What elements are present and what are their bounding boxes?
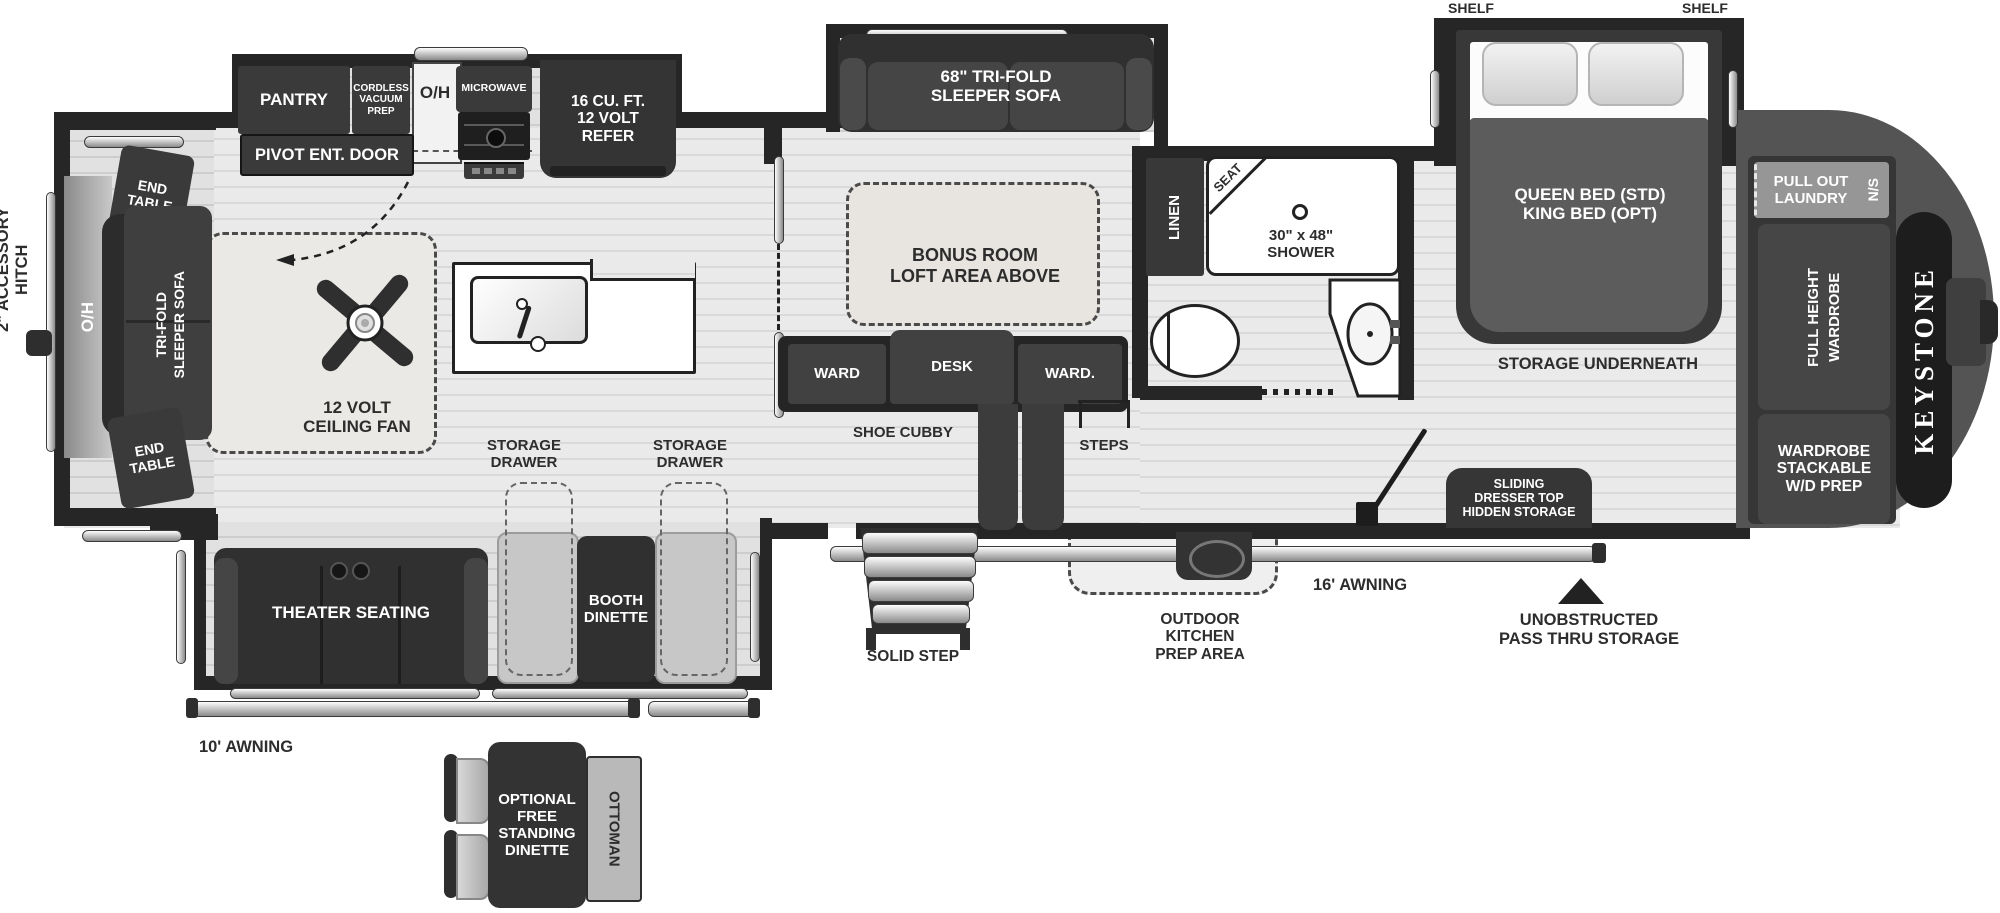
storage-underneath-label: STORAGE UNDERNEATH [1478,350,1718,378]
steps-bracket-leg-left [1079,400,1082,428]
entry-door-foot [1356,502,1378,526]
pantry: PANTRY [238,66,350,134]
range-drawer-slots [472,168,516,174]
bath-sink-counter [1326,270,1404,400]
kitchen-slide-rail [414,47,528,61]
kingpin-icon [1980,300,1998,344]
awning-10-cap-left [186,698,198,718]
rear-overhead-label: O/H [78,302,97,332]
bath-sliding-door-track [1262,389,1336,395]
refrigerator: 16 CU. FT. 12 VOLT REFER [540,60,676,178]
shower-drain [1292,204,1308,220]
storage-drawer-label-right: STORAGE DRAWER [642,430,738,478]
rear-slide-wall-bottom [54,508,216,526]
booth-storage-drawer-right [660,482,728,676]
shoe-cubby-label: SHOE CUBBY [840,420,966,446]
solid-step-label: SOLID STEP [852,644,974,670]
door-slide-wall-left [194,518,206,690]
rear-bottom-rail [82,530,182,542]
outdoor-grill-burner [1189,540,1245,578]
laundry-label: PULL OUT LAUNDRY [1757,173,1865,207]
wardrobe-wd-prep: WARDROBE STACKABLE W/D PREP [1758,414,1890,524]
dinette-chair-2-seat [456,834,490,900]
theater-armrest-right [464,558,488,684]
ceiling-fan-label: 12 VOLT CEILING FAN [282,392,432,442]
entry-rod-top [774,156,784,244]
cooktop-burner [486,128,506,148]
booth-rod [750,552,760,662]
desk: DESK [890,330,1014,404]
sofa68-label: 68" TRI-FOLD SLEEPER SOFA [860,56,1132,116]
storage-drawer-label-left: STORAGE DRAWER [478,430,570,478]
bed-rod-right [1728,70,1738,128]
wall-bath-bottom [1140,386,1262,400]
door-slide-rail-a [230,688,480,699]
laundry-ns-label: N/S [1865,178,1881,201]
bed-label: QUEEN BED (STD) KING BED (OPT) [1490,176,1690,232]
steps-bracket-leg-right [1127,400,1130,428]
cupholder-2 [352,562,370,580]
wall-top-mid [658,112,842,128]
shelf-label-left: SHELF [1442,0,1500,18]
toilet [1150,304,1240,378]
trifold-sofa-label-wrap: TRI-FOLD SLEEPER SOFA [130,240,210,410]
ottoman-label: OTTOMAN [605,791,622,867]
full-height-wardrobe: FULL HEIGHT WARDROBE [1758,224,1890,410]
cooktop [458,112,530,160]
theater-rod [176,550,186,664]
accessory-hitch-label: 2" ACCESSORY HITCH [0,186,26,354]
linen-cabinet: LINEN [1146,158,1204,276]
cupholder-1 [330,562,348,580]
shelf-label-right: SHELF [1676,0,1734,18]
solid-step-4 [872,604,970,624]
microwave: MICROWAVE [456,66,532,112]
keystone-logo: KEYSTONE [1896,212,1952,508]
awning-short-cap [748,698,760,718]
theater-armrest-left [214,558,238,684]
full-height-wardrobe-label: FULL HEIGHT WARDROBE [1803,268,1845,367]
cordless-vacuum-prep: CORDLESS VACUUM PREP [352,66,410,134]
trifold-sofa-label: TRI-FOLD SLEEPER SOFA [152,271,188,378]
optional-dinette-table: OPTIONAL FREE STANDING DINETTE [488,742,586,908]
solid-step-2 [864,556,976,578]
end-table-bottom: END TABLE [107,406,196,509]
solid-step-1 [862,532,978,554]
bonus-slide-wall-right [1154,24,1168,146]
solid-step-3 [868,580,974,602]
theater-seating-label: THEATER SEATING [238,598,464,628]
steps-label: STEPS [1068,434,1140,458]
bed-pillow-right [1588,42,1684,106]
floorplan: KEYSTONE O/H END TABLE TRI-FOLD SLEEPER … [0,0,2000,913]
bed-pillow-left [1482,42,1578,106]
steps-bracket-top [1078,400,1130,403]
pass-thru-arrow [1558,578,1604,604]
bed-rod-left [1430,70,1440,128]
dinette-chair-1-seat [456,758,490,824]
stair-pillar-right [1022,404,1064,530]
door-slide-wall-right [760,518,772,690]
door-slide-rail-b [492,688,748,699]
ceiling-fan-icon [300,258,430,388]
keystone-logo-text: KEYSTONE [1909,265,1940,455]
awning-10-cap-right [628,698,640,718]
ward-left: WARD [788,344,886,404]
shower-label: 30" x 48" SHOWER [1246,222,1356,266]
linen-label: LINEN [1166,195,1183,240]
booth-dinette-table: BOOTH DINETTE [577,536,655,682]
sliding-dresser: SLIDING DRESSER TOP HIDDEN STORAGE [1446,468,1592,528]
ottoman: OTTOMAN [586,756,642,902]
pull-out-laundry: PULL OUT LAUNDRY N/S [1754,162,1889,218]
outdoor-grill [1176,532,1252,580]
accessory-hitch-text: 2" ACCESSORY HITCH [0,186,32,354]
kitchen-overhead-label: O/H [412,76,458,110]
awning-16-label: 16' AWNING [1300,572,1420,598]
pass-thru-label: UNOBSTRUCTED PASS THRU STORAGE [1494,608,1684,652]
awning-16-endcap [1592,543,1606,563]
entry-dashed-line [777,244,780,330]
loft-label: BONUS ROOM LOFT AREA ABOVE [878,238,1072,294]
cooktop-line-1 [464,124,524,126]
awning-10-label: 10' AWNING [190,734,302,760]
faucet-ball [530,336,546,352]
toilet-seat-line [1167,313,1170,369]
range-drawer [464,162,524,179]
booth-storage-drawer-left [505,482,573,676]
rear-rod [46,192,56,452]
stair-pillar-left [978,404,1018,530]
awning-bar-short [648,701,758,717]
refrigerator-base [550,166,666,176]
awning-10-bar [190,701,636,717]
wall-bottom-a [770,523,828,539]
rear-slide-wall-top [54,112,216,130]
island-notch [590,259,695,281]
outdoor-kitchen-label: OUTDOOR KITCHEN PREP AREA [1134,602,1266,672]
ward-right: WARD. [1018,344,1122,404]
